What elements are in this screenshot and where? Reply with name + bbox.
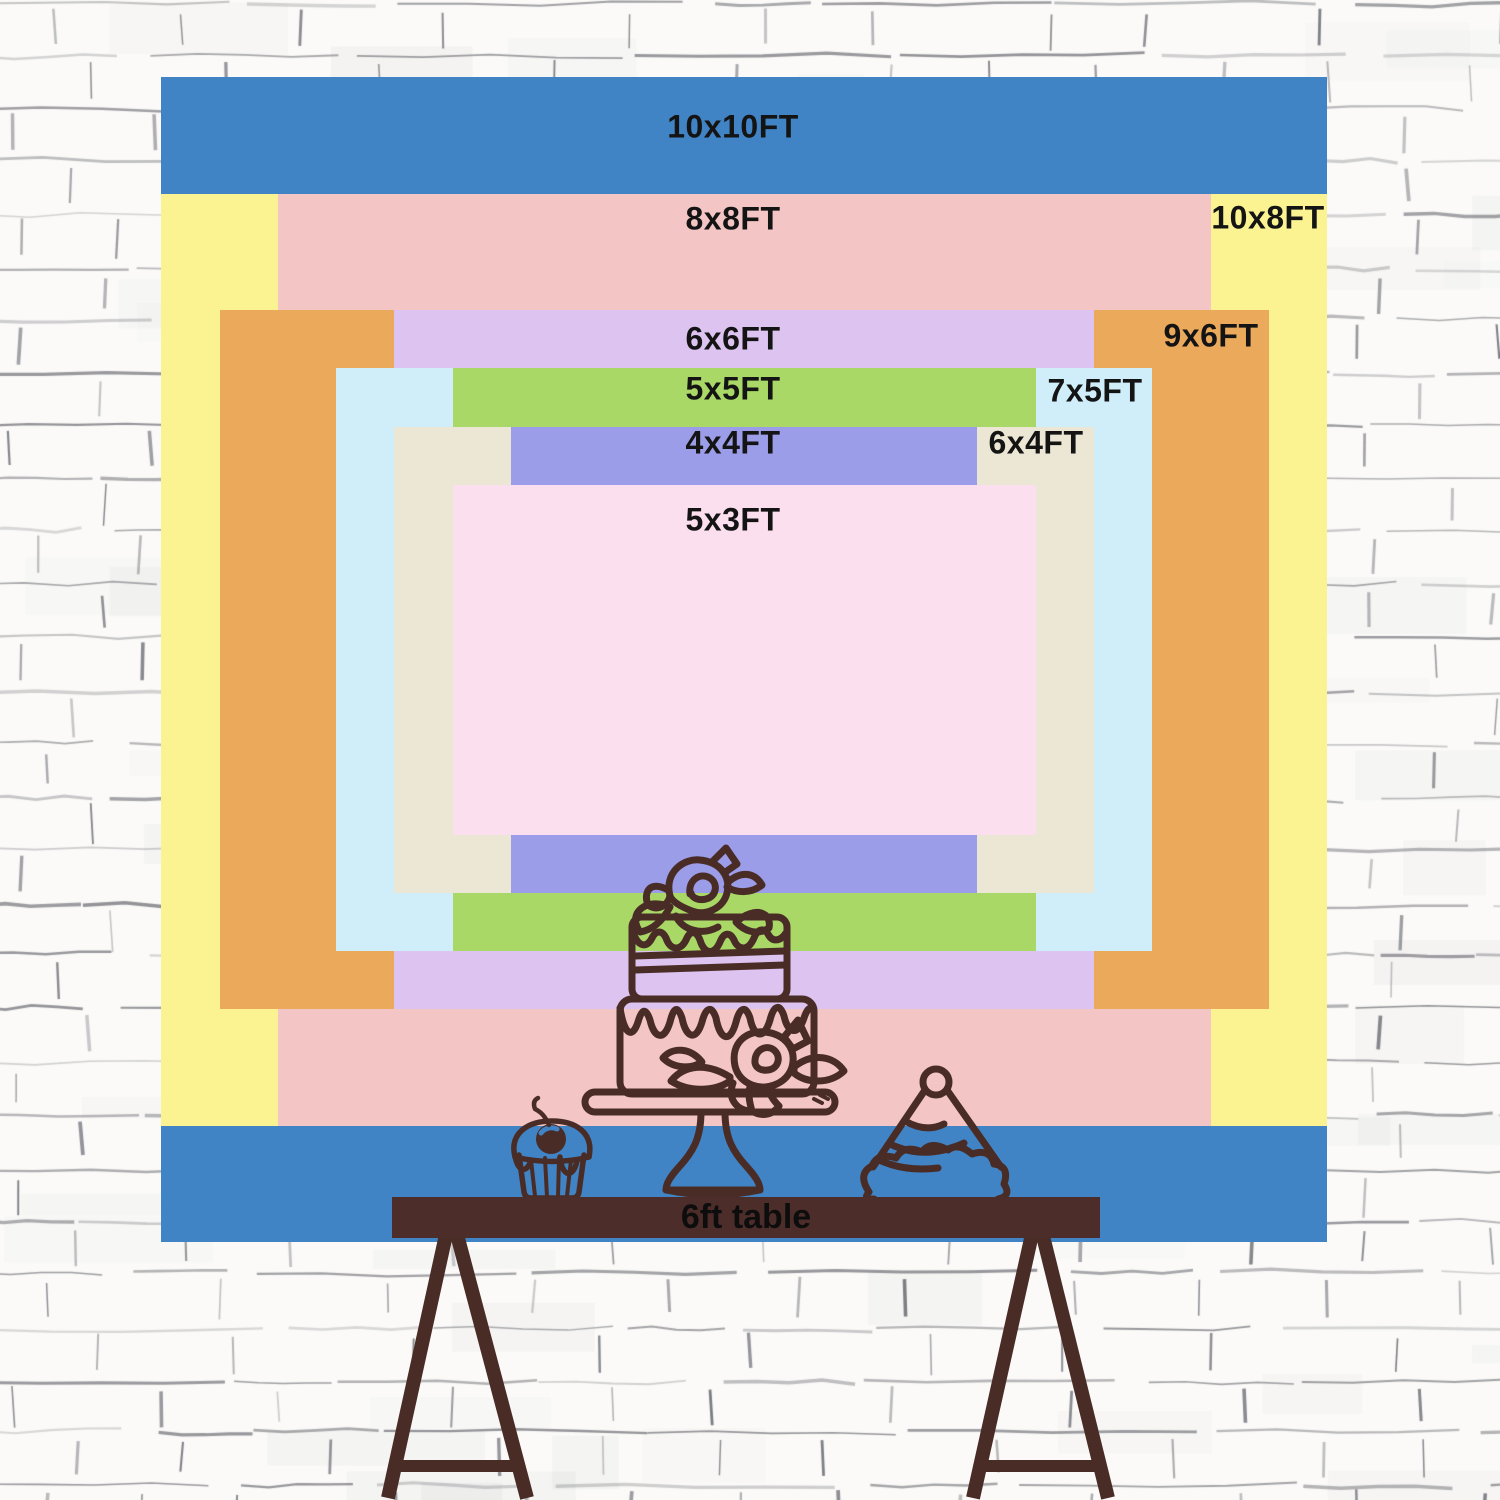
size-label-4x4: 4x4FT [686,425,781,462]
size-label-8x8: 8x8FT [686,201,781,238]
size-label-6x6: 6x6FT [686,321,781,358]
size-label-5x3: 5x3FT [686,502,781,539]
backdrop-size-chart: 10x10FT10x8FT8x8FT9x6FT6x6FT7x5FT5x5FT6x… [0,0,1500,1500]
size-label-10x8: 10x8FT [1211,200,1324,237]
table-top: 6ft table [392,1197,1100,1238]
backdrop-banner: 10x10FT10x8FT8x8FT9x6FT6x6FT7x5FT5x5FT6x… [161,77,1327,1242]
size-label-5x5: 5x5FT [686,371,781,408]
size-label-6x4: 6x4FT [989,425,1084,462]
size-label-7x5: 7x5FT [1048,373,1143,410]
size-label-10x10: 10x10FT [667,109,799,146]
size-label-9x6: 9x6FT [1164,318,1259,355]
